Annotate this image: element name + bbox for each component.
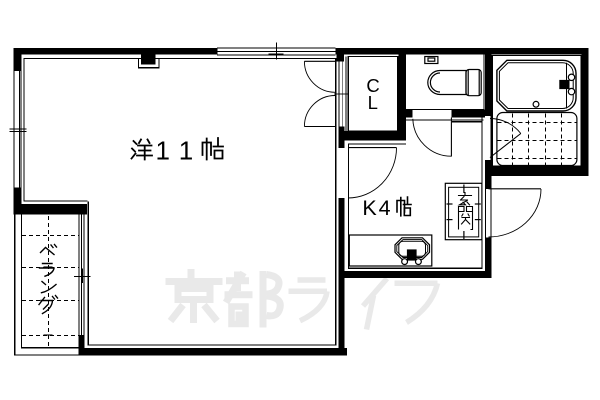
svg-text:1: 1 (155, 136, 169, 166)
svg-text:K: K (362, 196, 377, 220)
svg-text:4: 4 (379, 196, 391, 220)
svg-text:L: L (368, 92, 378, 113)
svg-text:1: 1 (179, 136, 193, 166)
